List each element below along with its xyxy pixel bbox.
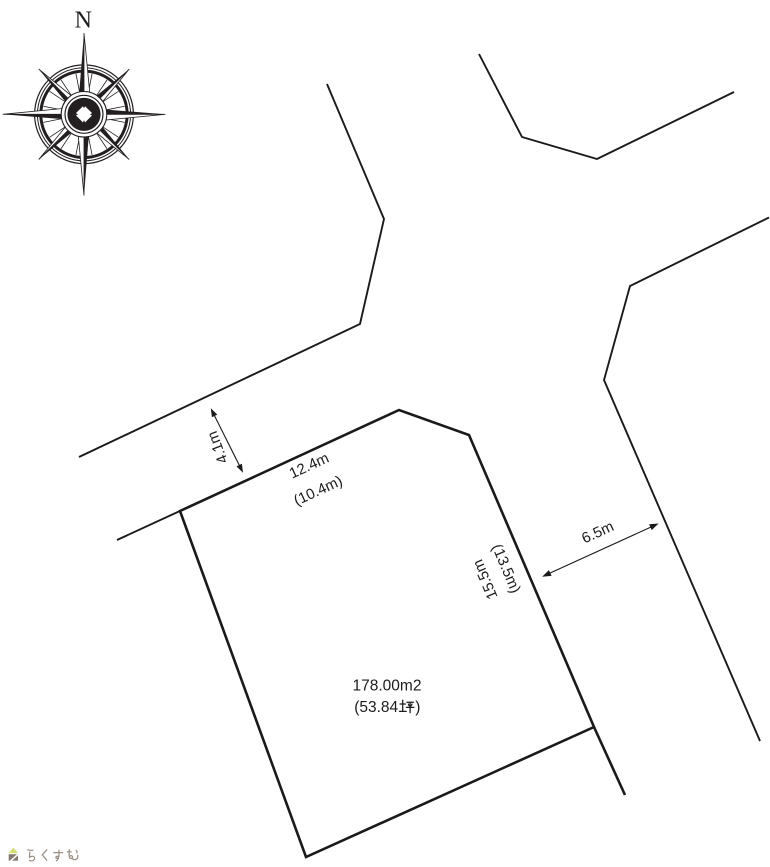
svg-text:N: N <box>75 8 92 34</box>
svg-text:): ) <box>415 699 420 716</box>
svg-text:178.00m2: 178.00m2 <box>353 677 422 694</box>
svg-text:(53.84: (53.84 <box>354 699 398 716</box>
